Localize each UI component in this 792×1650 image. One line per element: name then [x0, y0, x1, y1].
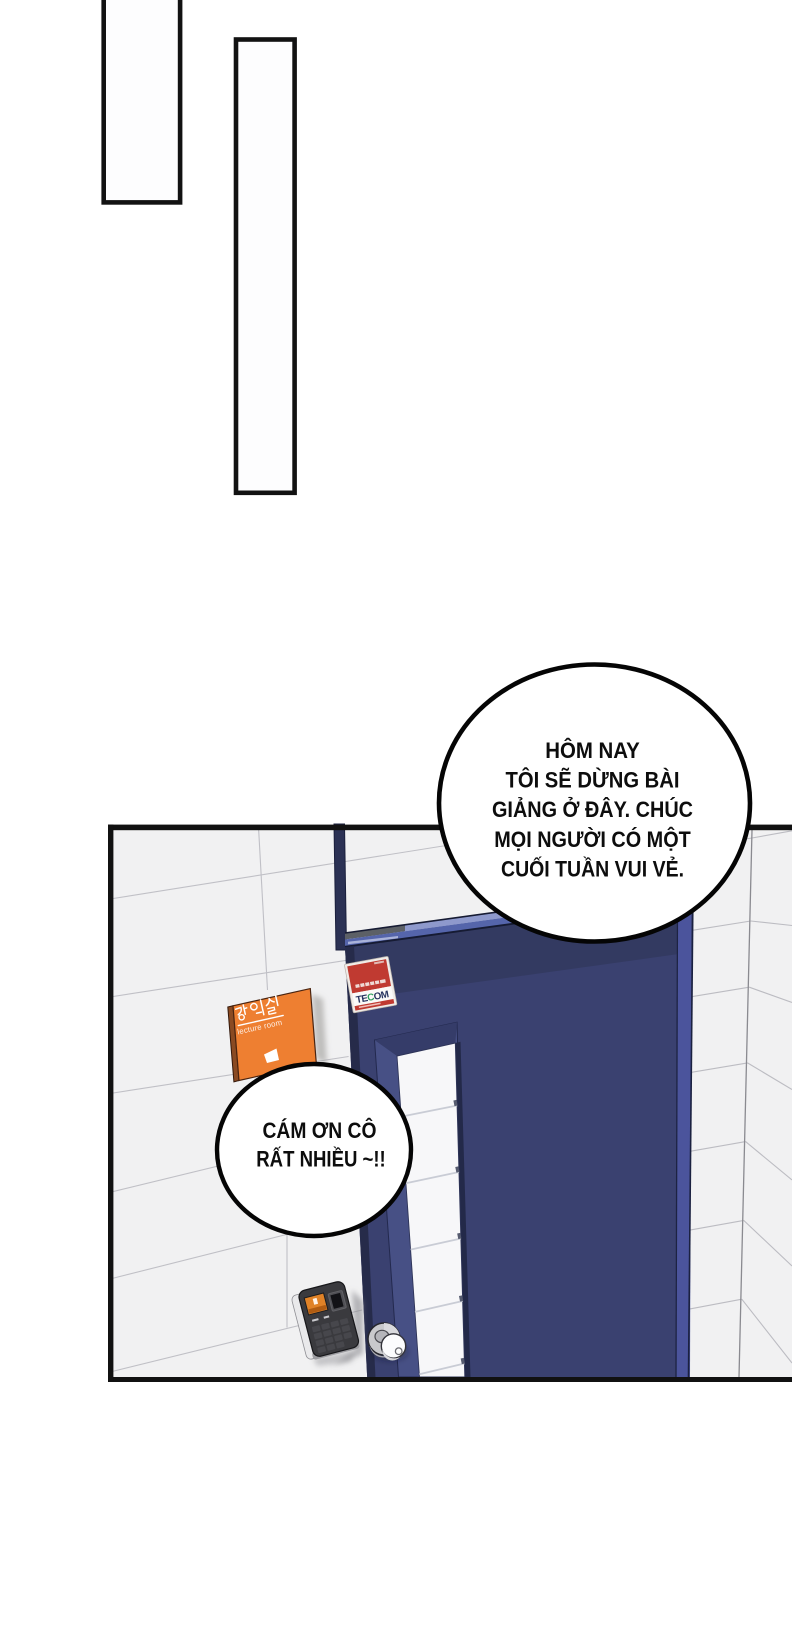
- svg-text:HÔM NAY: HÔM NAY: [545, 738, 640, 763]
- svg-text:MỌI NGƯỜI CÓ MỘT: MỌI NGƯỜI CÓ MỘT: [494, 827, 691, 852]
- svg-text:GIẢNG Ở ĐÂY. CHÚC: GIẢNG Ở ĐÂY. CHÚC: [492, 797, 693, 822]
- svg-text:TÔI SẼ DỪNG BÀI: TÔI SẼ DỪNG BÀI: [506, 768, 680, 793]
- svg-text:CÁM ƠN CÔ: CÁM ƠN CÔ: [263, 1118, 377, 1143]
- svg-text:RẤT NHIỀU ~!!: RẤT NHIỀU ~!!: [256, 1146, 386, 1171]
- svg-text:CUỐI TUẦN VUI VẺ.: CUỐI TUẦN VUI VẺ.: [501, 855, 684, 881]
